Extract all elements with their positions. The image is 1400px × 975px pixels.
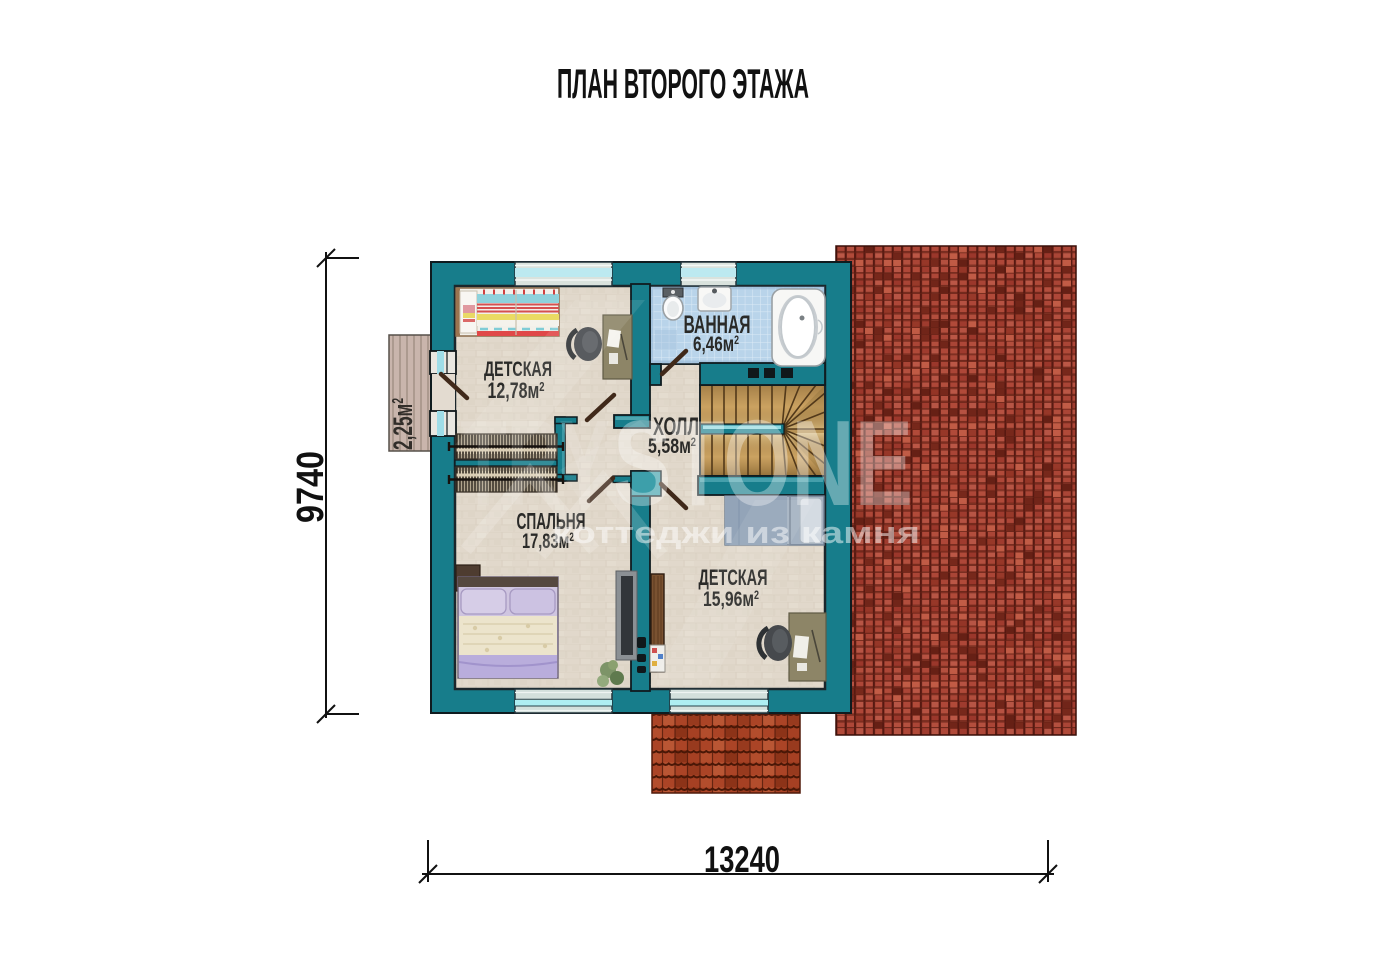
svg-text:STONE: STONE [613,395,913,531]
svg-text:TRY: TRY [460,395,610,531]
svg-text:ПЛАН ВТОРОГО ЭТАЖА: ПЛАН ВТОРОГО ЭТАЖА [557,60,809,107]
svg-text:2,25м2: 2,25м2 [388,398,418,450]
svg-text:13240: 13240 [704,839,780,880]
svg-text:6,46м2: 6,46м2 [693,333,739,356]
svg-text:коттеджи из камня: коттеджи из камня [552,515,920,550]
svg-text:9740: 9740 [290,451,332,523]
